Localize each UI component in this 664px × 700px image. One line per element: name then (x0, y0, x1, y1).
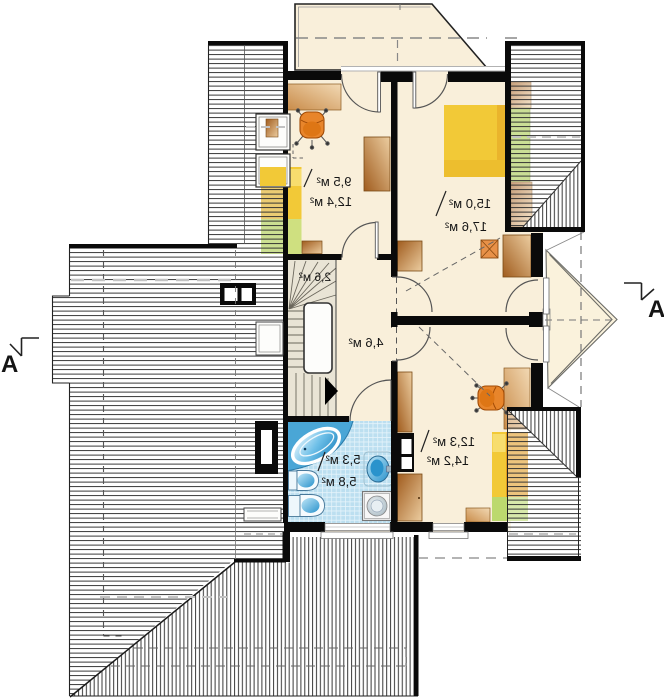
svg-text:5,3 м²: 5,3 м² (325, 452, 361, 467)
svg-text:12,3 м²: 12,3 м² (432, 434, 475, 449)
svg-text:12,4 м²: 12,4 м² (309, 194, 352, 209)
svg-text:17,6 м²: 17,6 м² (444, 219, 487, 234)
svg-text:15,0 м²: 15,0 м² (448, 196, 491, 211)
svg-text:5,8 м²: 5,8 м² (321, 474, 357, 489)
svg-text:2,6 м²: 2,6 м² (299, 270, 331, 284)
svg-text:A: A (1, 351, 18, 378)
svg-text:14,2 м²: 14,2 м² (426, 453, 469, 468)
svg-text:A: A (648, 296, 664, 323)
svg-text:4,6 м²: 4,6 м² (348, 335, 384, 350)
svg-text:9,5 м²: 9,5 м² (316, 174, 352, 189)
